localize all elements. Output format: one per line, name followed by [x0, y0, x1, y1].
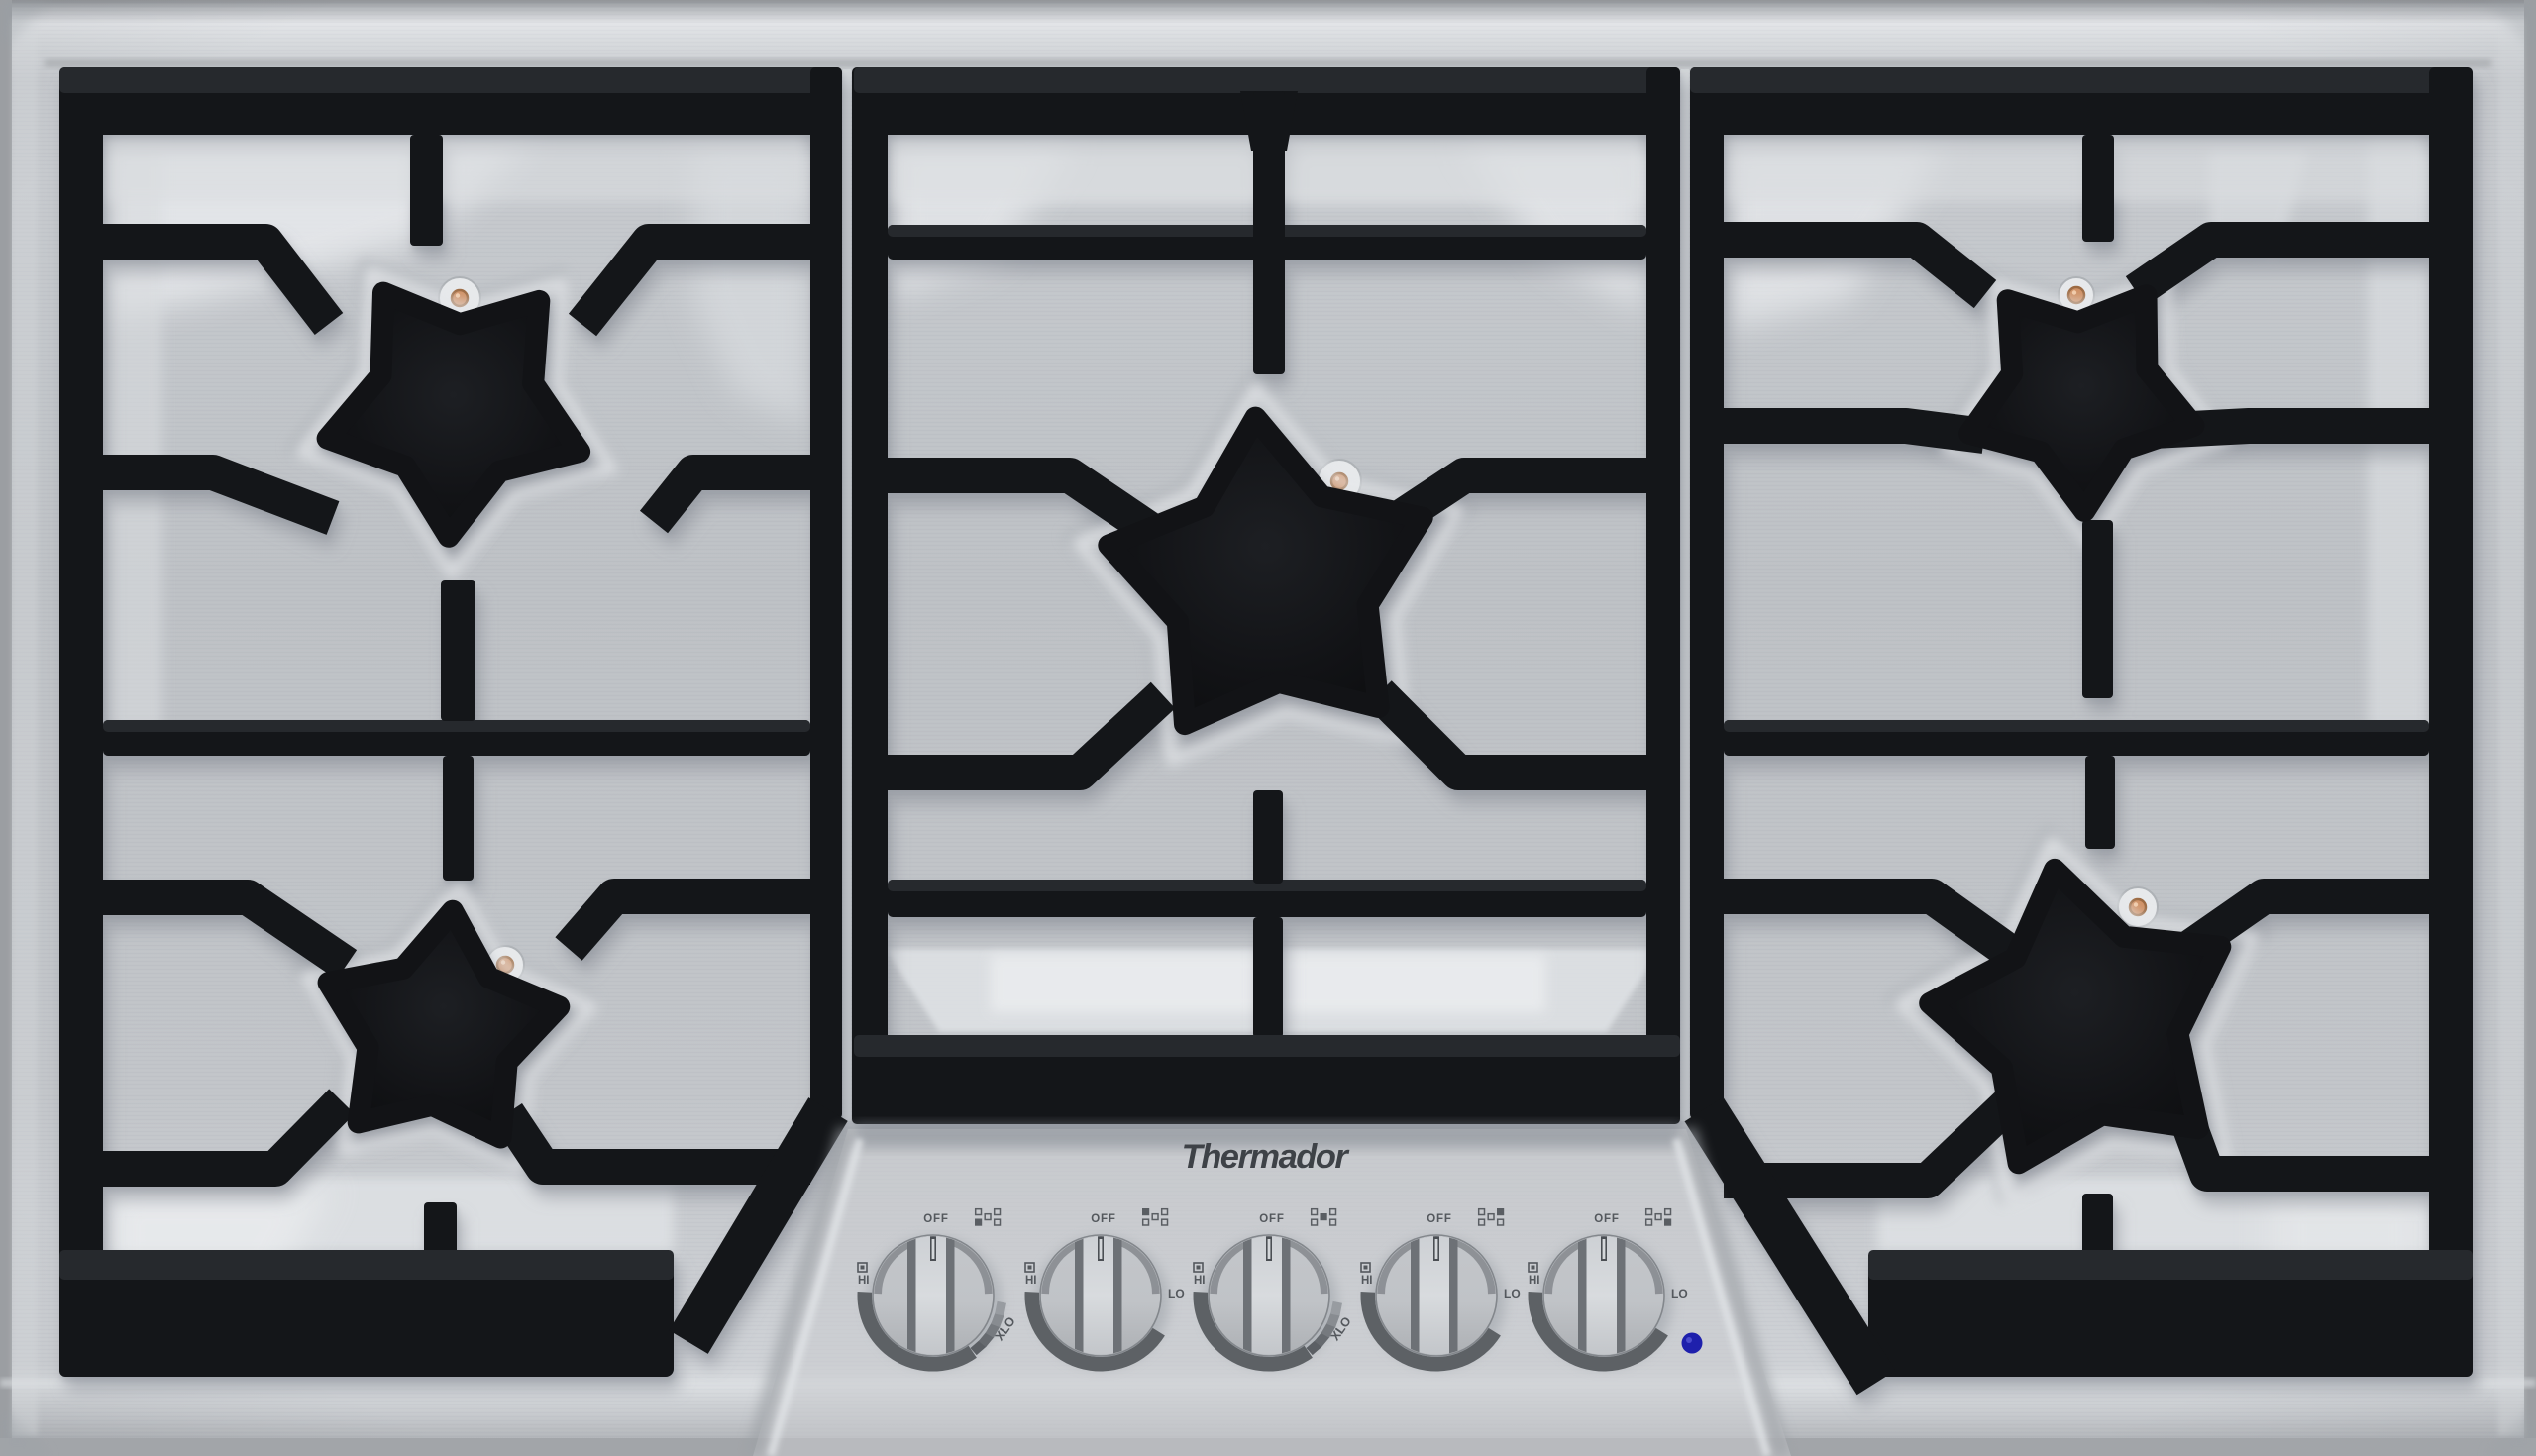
svg-text:HI: HI [858, 1275, 870, 1287]
svg-text:OFF: OFF [1594, 1213, 1619, 1225]
svg-text:LO: LO [1168, 1287, 1185, 1300]
svg-text:OFF: OFF [1259, 1213, 1284, 1225]
svg-text:OFF: OFF [1091, 1213, 1115, 1225]
svg-text:HI: HI [1529, 1275, 1540, 1287]
svg-text:HI: HI [1361, 1275, 1373, 1287]
svg-text:HI: HI [1025, 1275, 1037, 1287]
svg-text:LO: LO [1671, 1287, 1688, 1300]
svg-text:HI: HI [1194, 1275, 1206, 1287]
svg-text:OFF: OFF [923, 1213, 948, 1225]
svg-text:LO: LO [1504, 1287, 1521, 1300]
svg-text:OFF: OFF [1426, 1213, 1451, 1225]
svg-text:Thermador: Thermador [1182, 1138, 1350, 1176]
